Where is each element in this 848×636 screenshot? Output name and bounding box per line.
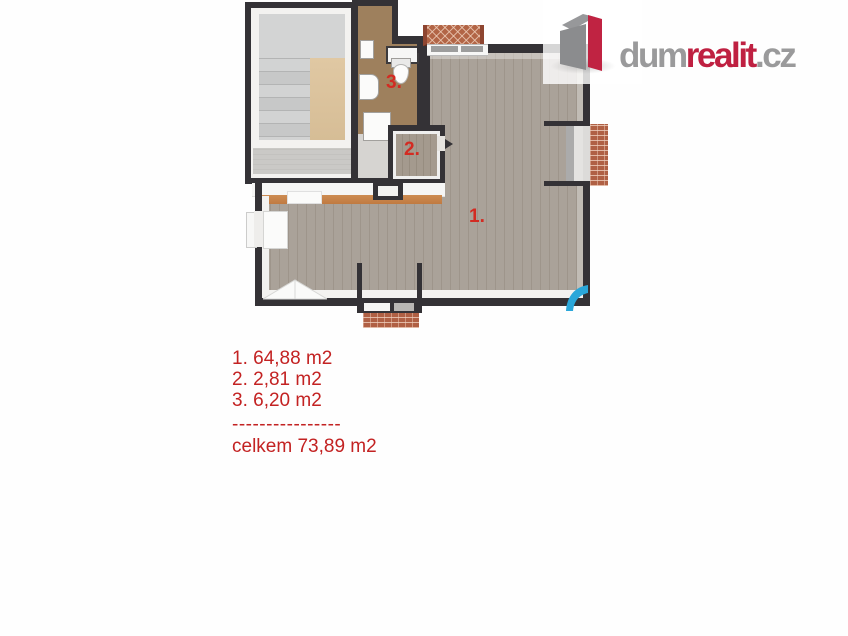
area-legend: 1. 64,88 m2 2. 2,81 m2 3. 6,20 m2 ------…	[232, 348, 377, 457]
stair-step	[259, 123, 310, 136]
window-bottom-pane	[394, 303, 414, 311]
washbasin-icon	[359, 74, 379, 100]
shower-icon	[363, 112, 391, 141]
legend-total: celkem 73,89 m2	[232, 436, 377, 457]
legend-divider: ----------------	[232, 414, 377, 435]
stair-step	[259, 84, 310, 97]
wall-stub-face	[378, 186, 398, 196]
door-swing-icon	[445, 139, 453, 149]
room-1-label: 1.	[469, 206, 485, 228]
stair-step	[259, 71, 310, 84]
logo-text-realit: realit	[686, 36, 755, 75]
legend-line-room2: 2. 2,81 m2	[232, 369, 377, 390]
dumrealit-logo: dumrealit.cz	[619, 36, 794, 76]
window-top-bar	[461, 46, 483, 52]
legend-line-room1: 1. 64,88 m2	[232, 348, 377, 369]
window-right-post	[566, 126, 574, 181]
window-right-glass	[574, 126, 583, 181]
stair-lower-wall-face	[259, 140, 345, 148]
boiler-icon	[360, 40, 374, 59]
stair-step	[259, 58, 310, 71]
window-bottom	[364, 303, 390, 311]
wall-stub	[373, 183, 403, 200]
chimney-top-icon	[423, 25, 484, 46]
blue-swoosh-icon	[562, 281, 590, 312]
dumrealit-cube-icon	[556, 3, 606, 75]
logo-text-cz: .cz	[755, 36, 795, 75]
stair-landing	[259, 14, 345, 59]
room-3-label: 3.	[386, 72, 402, 94]
chimney-post	[417, 263, 422, 306]
window-left-gap	[254, 211, 263, 247]
legend-line-room3: 3. 6,20 m2	[232, 390, 377, 411]
floorplan-page: 1. 2. 3. 1. 64,88 m2 2. 2,81 m2 3. 6,20 …	[0, 0, 848, 636]
wood-threshold-strip	[258, 195, 442, 204]
window-right-frame	[583, 124, 590, 186]
stair-side-floor	[310, 58, 345, 140]
brick-bottom-icon	[363, 313, 419, 328]
corner-slope-marker	[263, 278, 327, 300]
stair-step	[259, 110, 310, 123]
floor-plan: 1. 2. 3.	[0, 0, 848, 636]
stairs	[259, 58, 310, 140]
staircase-block	[245, 2, 357, 184]
corridor-floor	[253, 148, 351, 174]
brick-right-icon	[590, 124, 608, 186]
window-sill-piece	[287, 191, 322, 204]
window-right-sash	[544, 181, 590, 186]
chimney-post	[357, 263, 362, 306]
logo-text-dum: dum	[619, 36, 686, 75]
window-cabinet	[263, 211, 288, 249]
window-top-bar	[431, 46, 458, 52]
room-2-door-gap	[437, 136, 445, 151]
room-2-label: 2.	[404, 139, 420, 161]
stair-step	[259, 97, 310, 110]
